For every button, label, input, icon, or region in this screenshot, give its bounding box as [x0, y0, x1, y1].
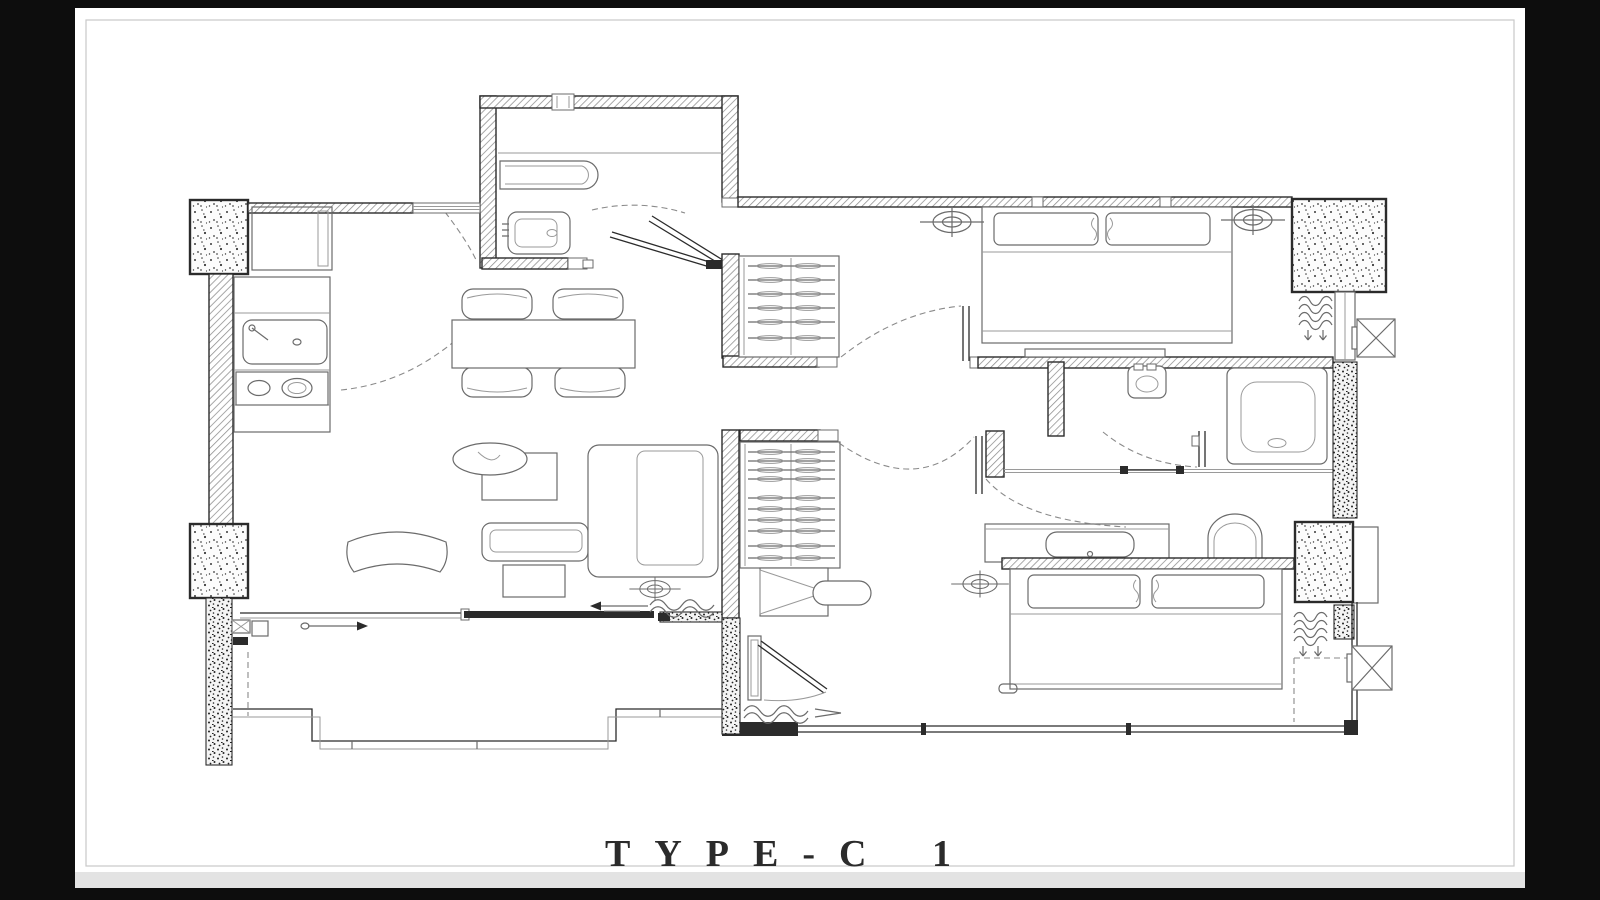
double-bed-icon [999, 569, 1282, 693]
concrete-column [190, 200, 248, 274]
chair-icon [1208, 514, 1262, 560]
floor-plan-drawing: TYPE-C 1 [0, 0, 1600, 900]
floor-plan-canvas: TYPE-C 1 [0, 0, 1600, 900]
concrete-column [190, 524, 248, 598]
bathtub-icon [1227, 368, 1327, 464]
toilet-icon [1128, 364, 1166, 398]
toilet-icon [502, 212, 570, 254]
dining-table-icon [452, 320, 635, 368]
bathtub-icon [500, 161, 598, 189]
ac-outdoor-unit-icon [1347, 646, 1392, 690]
stool-icon [813, 581, 871, 605]
vanity-sink-icon [985, 524, 1169, 563]
coffee-table-icon [503, 565, 565, 597]
concrete-column [1292, 199, 1386, 292]
ac-outdoor-unit-icon [1352, 319, 1395, 357]
plan-title: TYPE-C 1 [605, 833, 975, 875]
plant-icon [453, 443, 527, 475]
concrete-column [1295, 522, 1353, 602]
double-bed-icon [982, 207, 1232, 343]
walk-in-closet-1 [722, 254, 839, 367]
vanity-counter [1025, 349, 1165, 357]
